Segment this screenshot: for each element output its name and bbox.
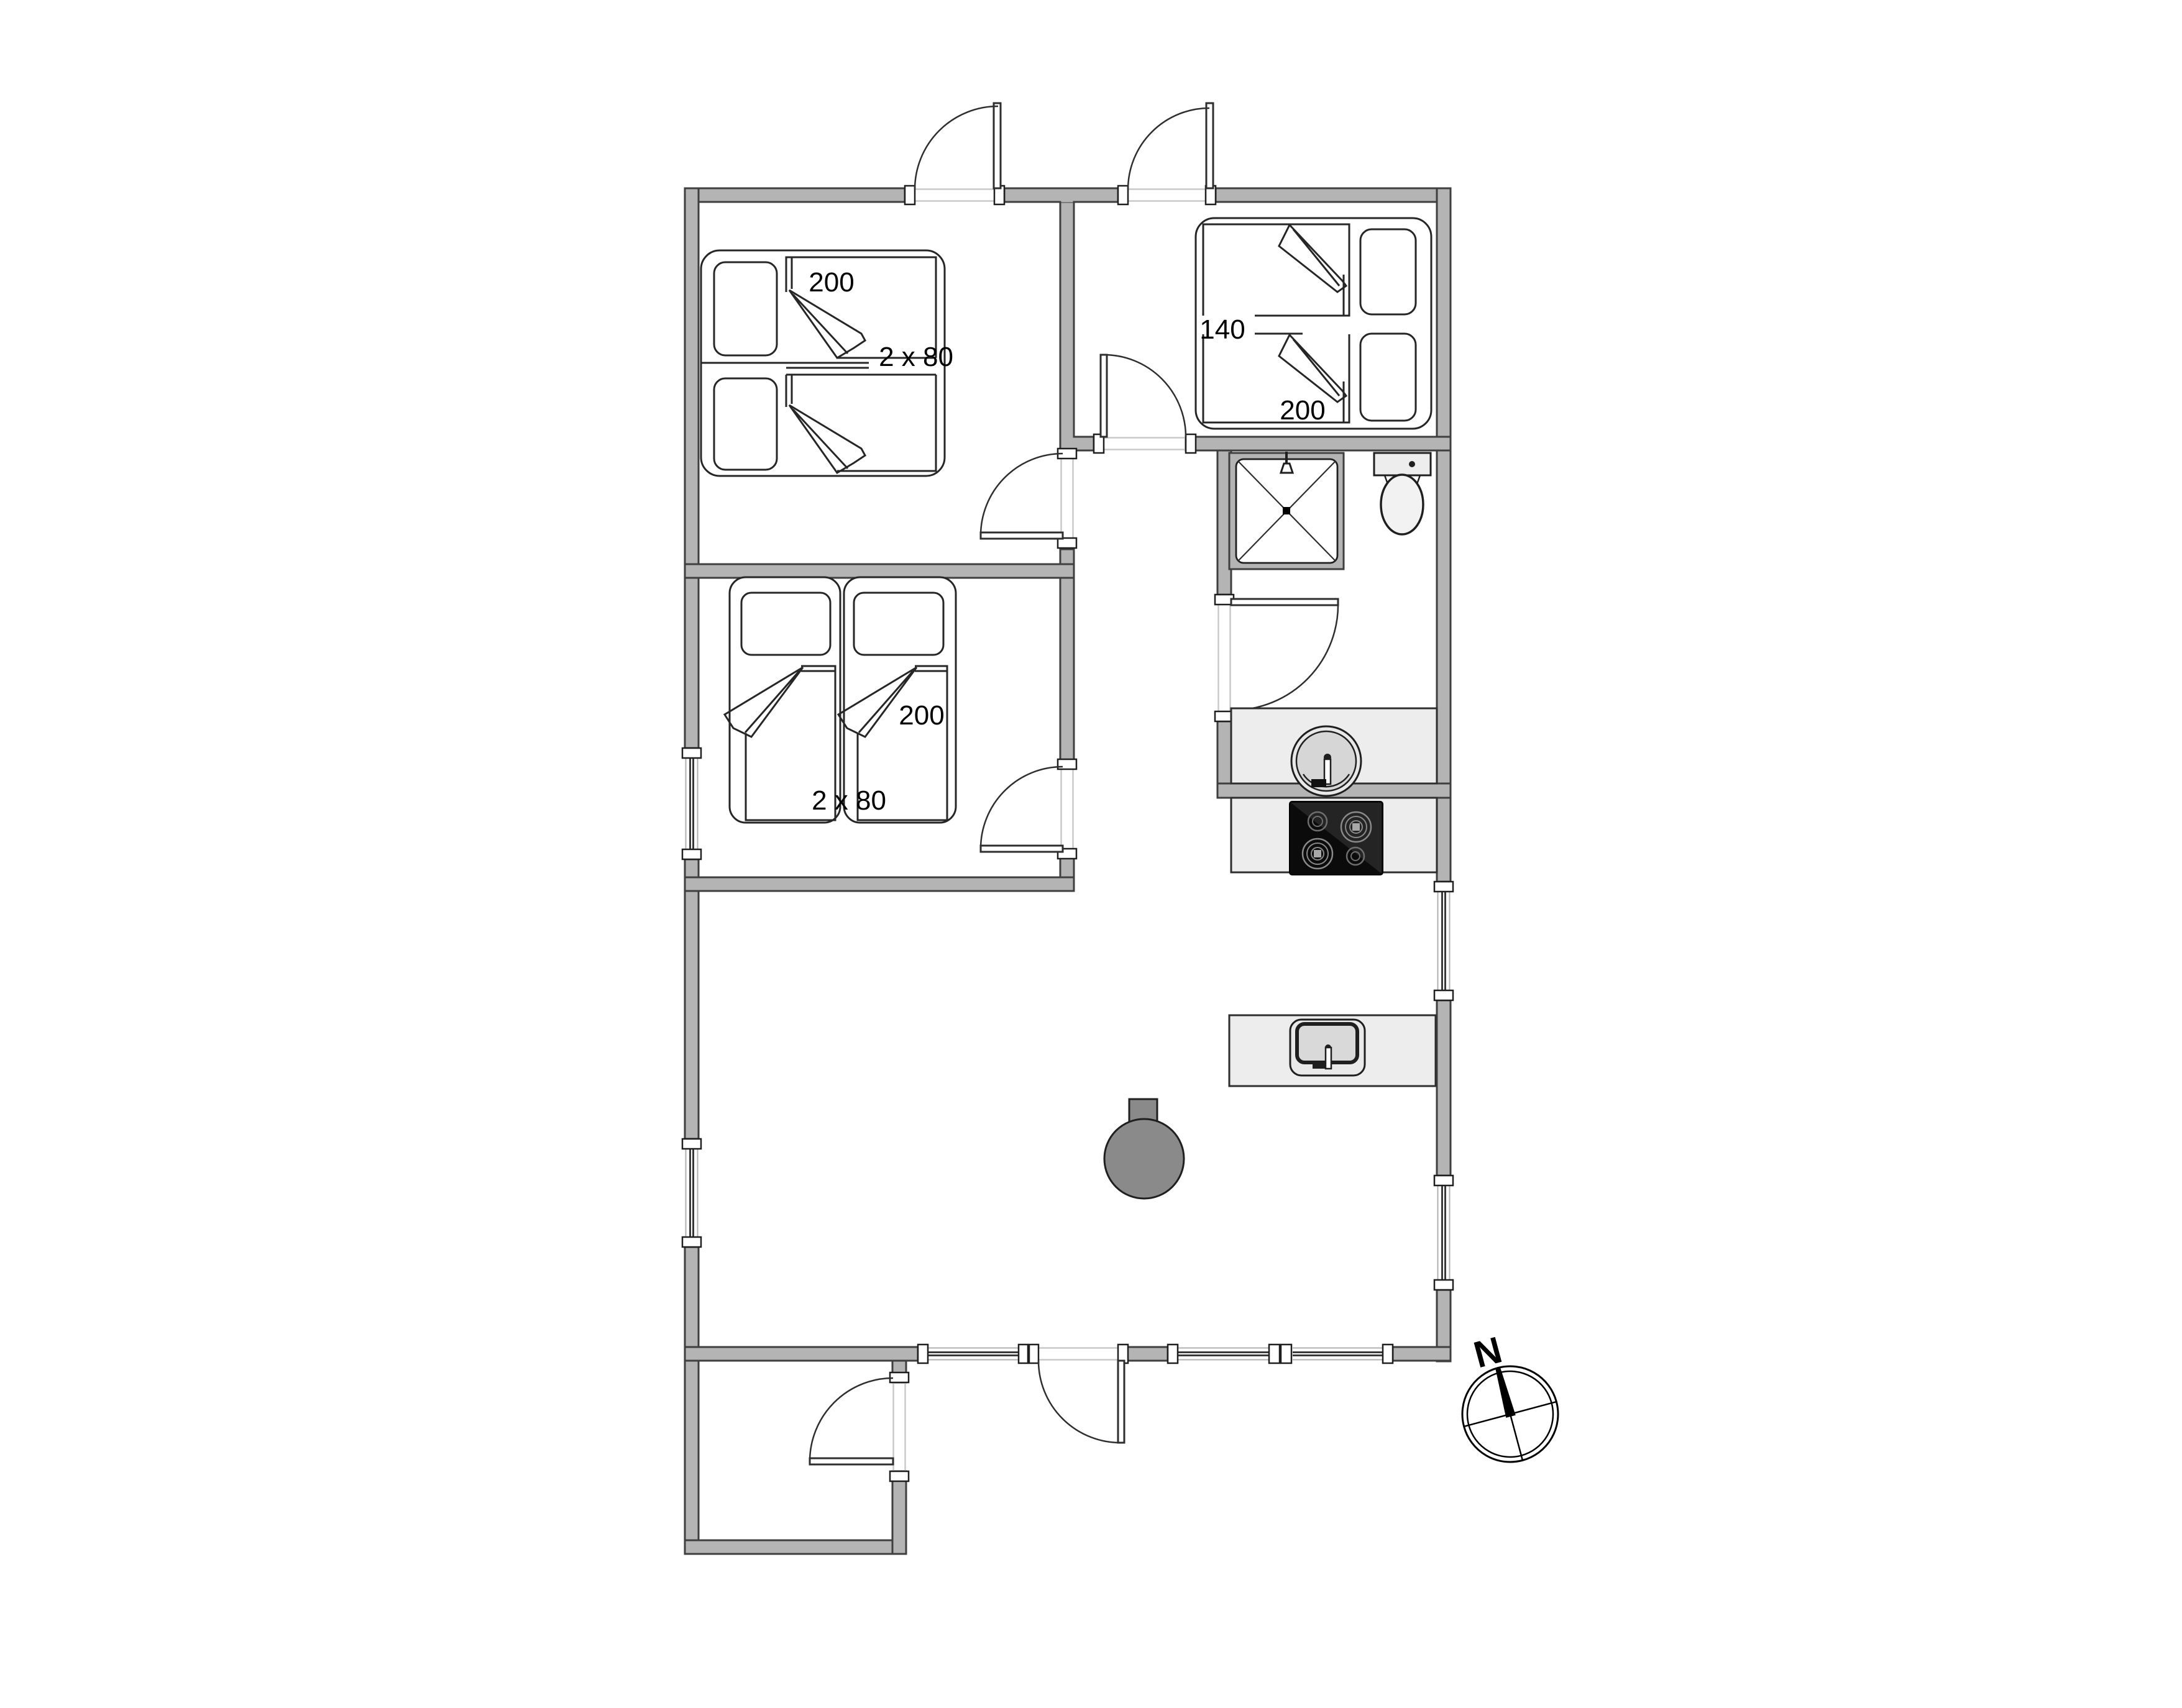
svg-text:200: 200 — [1280, 395, 1325, 426]
svg-text:2 x 80: 2 x 80 — [812, 785, 886, 816]
svg-text:200: 200 — [809, 267, 854, 298]
svg-text:200: 200 — [899, 700, 944, 731]
svg-text:140: 140 — [1199, 314, 1245, 345]
svg-text:2 x 80: 2 x 80 — [879, 342, 953, 372]
